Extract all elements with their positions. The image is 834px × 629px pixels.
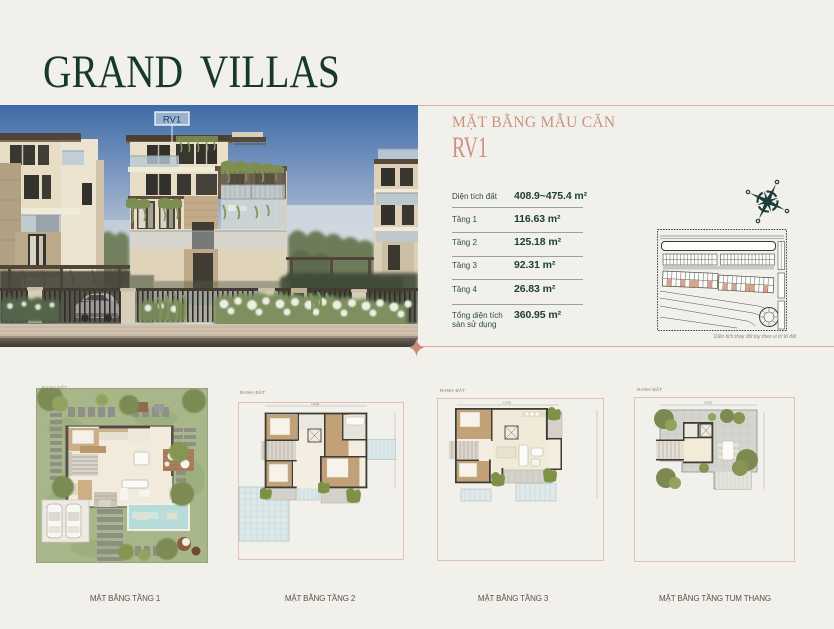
svg-text:11000: 11000: [503, 401, 511, 405]
svg-text:12000: 12000: [704, 401, 713, 405]
svg-text:RV1: RV1: [163, 115, 181, 126]
svg-text:11000: 11000: [311, 402, 319, 406]
